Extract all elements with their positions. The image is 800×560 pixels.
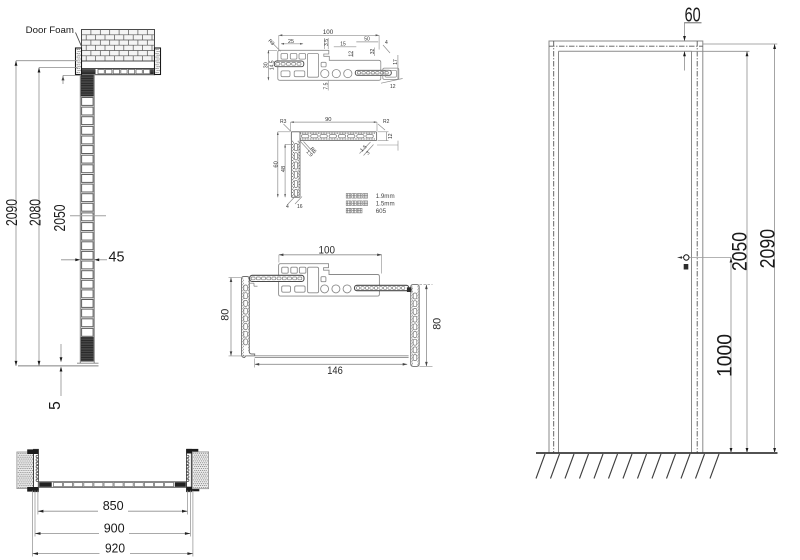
svg-text:48: 48 [281, 166, 287, 172]
svg-text:15: 15 [340, 42, 346, 48]
svg-text:12: 12 [388, 133, 394, 139]
svg-text:1000: 1000 [713, 334, 736, 377]
svg-text:3: 3 [365, 150, 371, 156]
svg-text:920: 920 [105, 541, 125, 556]
svg-text:605: 605 [376, 208, 387, 215]
svg-text:3.5: 3.5 [324, 39, 330, 46]
svg-text:25: 25 [288, 39, 294, 45]
svg-text:5: 5 [47, 401, 64, 410]
svg-text:Door Foam: Door Foam [26, 25, 74, 36]
svg-text:4: 4 [385, 40, 388, 46]
svg-text:45: 45 [109, 249, 125, 265]
svg-text:14.5: 14.5 [269, 60, 275, 70]
svg-text:100: 100 [319, 244, 336, 256]
svg-text:4: 4 [286, 204, 289, 210]
svg-text:2090: 2090 [757, 229, 780, 269]
svg-text:12: 12 [349, 51, 355, 57]
svg-text:1.9mm: 1.9mm [376, 193, 395, 200]
svg-text:2090: 2090 [4, 199, 21, 226]
svg-text:7.5: 7.5 [324, 82, 330, 89]
svg-text:17: 17 [393, 59, 399, 65]
svg-text:16: 16 [297, 204, 303, 210]
svg-text:80: 80 [219, 309, 231, 321]
svg-text:2050: 2050 [52, 204, 69, 231]
svg-text:60: 60 [685, 5, 701, 27]
svg-text:50: 50 [364, 37, 370, 43]
svg-text:100: 100 [323, 29, 334, 36]
svg-text:146: 146 [327, 365, 343, 377]
svg-text:12: 12 [390, 84, 396, 90]
svg-text:850: 850 [103, 498, 124, 513]
svg-text:80: 80 [432, 318, 444, 330]
svg-text:1.5mm: 1.5mm [376, 201, 395, 208]
svg-text:R3: R3 [267, 38, 276, 47]
svg-text:60: 60 [274, 161, 280, 167]
svg-text:R2: R2 [383, 119, 390, 125]
svg-text:R3: R3 [280, 119, 287, 125]
svg-text:2050: 2050 [728, 232, 751, 271]
svg-text:32: 32 [370, 49, 376, 55]
svg-text:2080: 2080 [28, 199, 45, 226]
svg-text:900: 900 [104, 520, 125, 535]
svg-text:90: 90 [325, 117, 331, 123]
